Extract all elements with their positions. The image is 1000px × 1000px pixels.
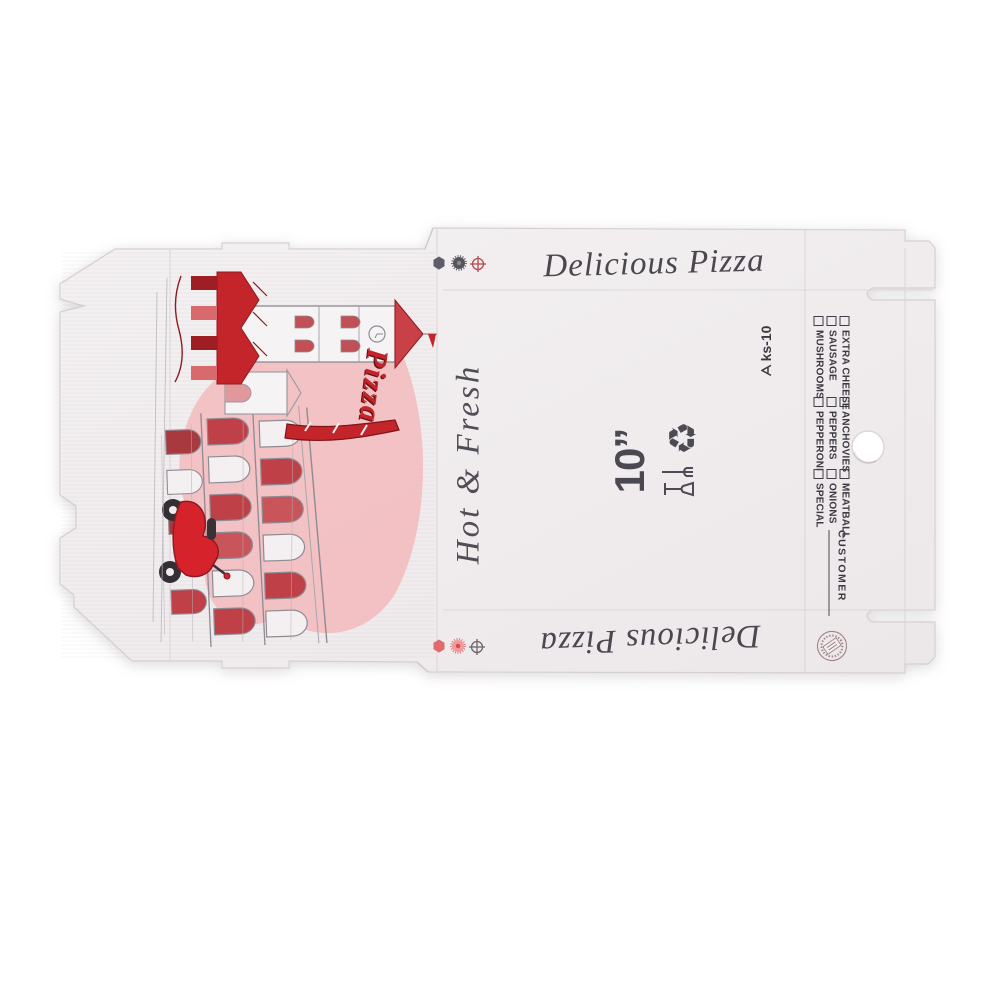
checkbox-icon bbox=[827, 316, 837, 326]
brand-script-top: Delicious Pizza bbox=[543, 243, 765, 286]
checkbox-icon bbox=[840, 397, 850, 407]
size-10-inch-label: 10” bbox=[606, 429, 654, 494]
customer-label: CUSTOMER bbox=[836, 530, 848, 618]
checkbox-icon bbox=[840, 316, 850, 326]
checkbox-icon bbox=[827, 469, 837, 479]
topping-label: MUSHROOMS bbox=[814, 330, 825, 399]
brand-script-bottom: Delicious Pizza bbox=[539, 617, 761, 662]
checkbox-icon bbox=[814, 397, 824, 407]
thumb-hole bbox=[852, 431, 884, 463]
recycle-icon: ♻ bbox=[664, 421, 702, 455]
brand-logo-icon bbox=[761, 364, 772, 376]
customer-write-in: CUSTOMER bbox=[829, 530, 848, 618]
topping-label: PEPPERS bbox=[827, 411, 838, 460]
pizza-box-product-photo: Delicious Pizza Delicious Pizza Hot & Fr… bbox=[0, 0, 1000, 1000]
topping-row: SPECIAL bbox=[813, 469, 826, 557]
toppings-group-1: EXTRA CHEESE SAUSAGE MUSHROOMS bbox=[813, 316, 852, 404]
signature-line bbox=[829, 530, 830, 616]
topping-label: SAUSAGE bbox=[827, 330, 838, 381]
topping-label: ANCHOVIES bbox=[840, 411, 851, 472]
checkbox-icon bbox=[814, 469, 824, 479]
checkbox-icon bbox=[814, 316, 824, 326]
topping-label: PEPPERONI bbox=[814, 411, 825, 471]
topping-row: MUSHROOMS bbox=[813, 316, 826, 404]
model-code-block: ks-10 bbox=[758, 326, 774, 377]
topping-row: SAUSAGE bbox=[826, 316, 839, 404]
topping-row: EXTRA CHEESE bbox=[839, 316, 852, 404]
model-code-text: ks-10 bbox=[758, 326, 774, 362]
topping-label: ONIONS bbox=[827, 483, 838, 524]
checkbox-icon bbox=[840, 469, 850, 479]
checkbox-icon bbox=[827, 397, 837, 407]
topping-label: SPECIAL bbox=[814, 483, 825, 528]
tagline-hot-and-fresh: Hot & Fresh bbox=[451, 364, 488, 564]
